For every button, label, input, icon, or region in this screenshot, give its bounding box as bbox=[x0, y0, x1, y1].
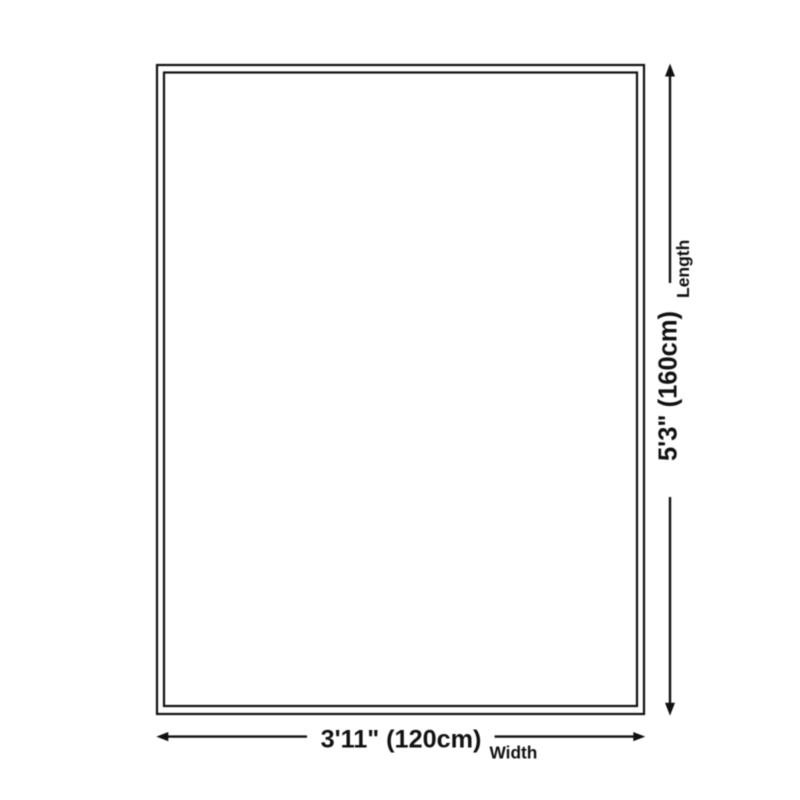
svg-text:Width: Width bbox=[490, 743, 538, 763]
svg-text:Length: Length bbox=[673, 240, 693, 298]
svg-text:5'3" (160cm): 5'3" (160cm) bbox=[655, 311, 683, 461]
svg-text:3'11" (120cm): 3'11" (120cm) bbox=[321, 726, 482, 754]
